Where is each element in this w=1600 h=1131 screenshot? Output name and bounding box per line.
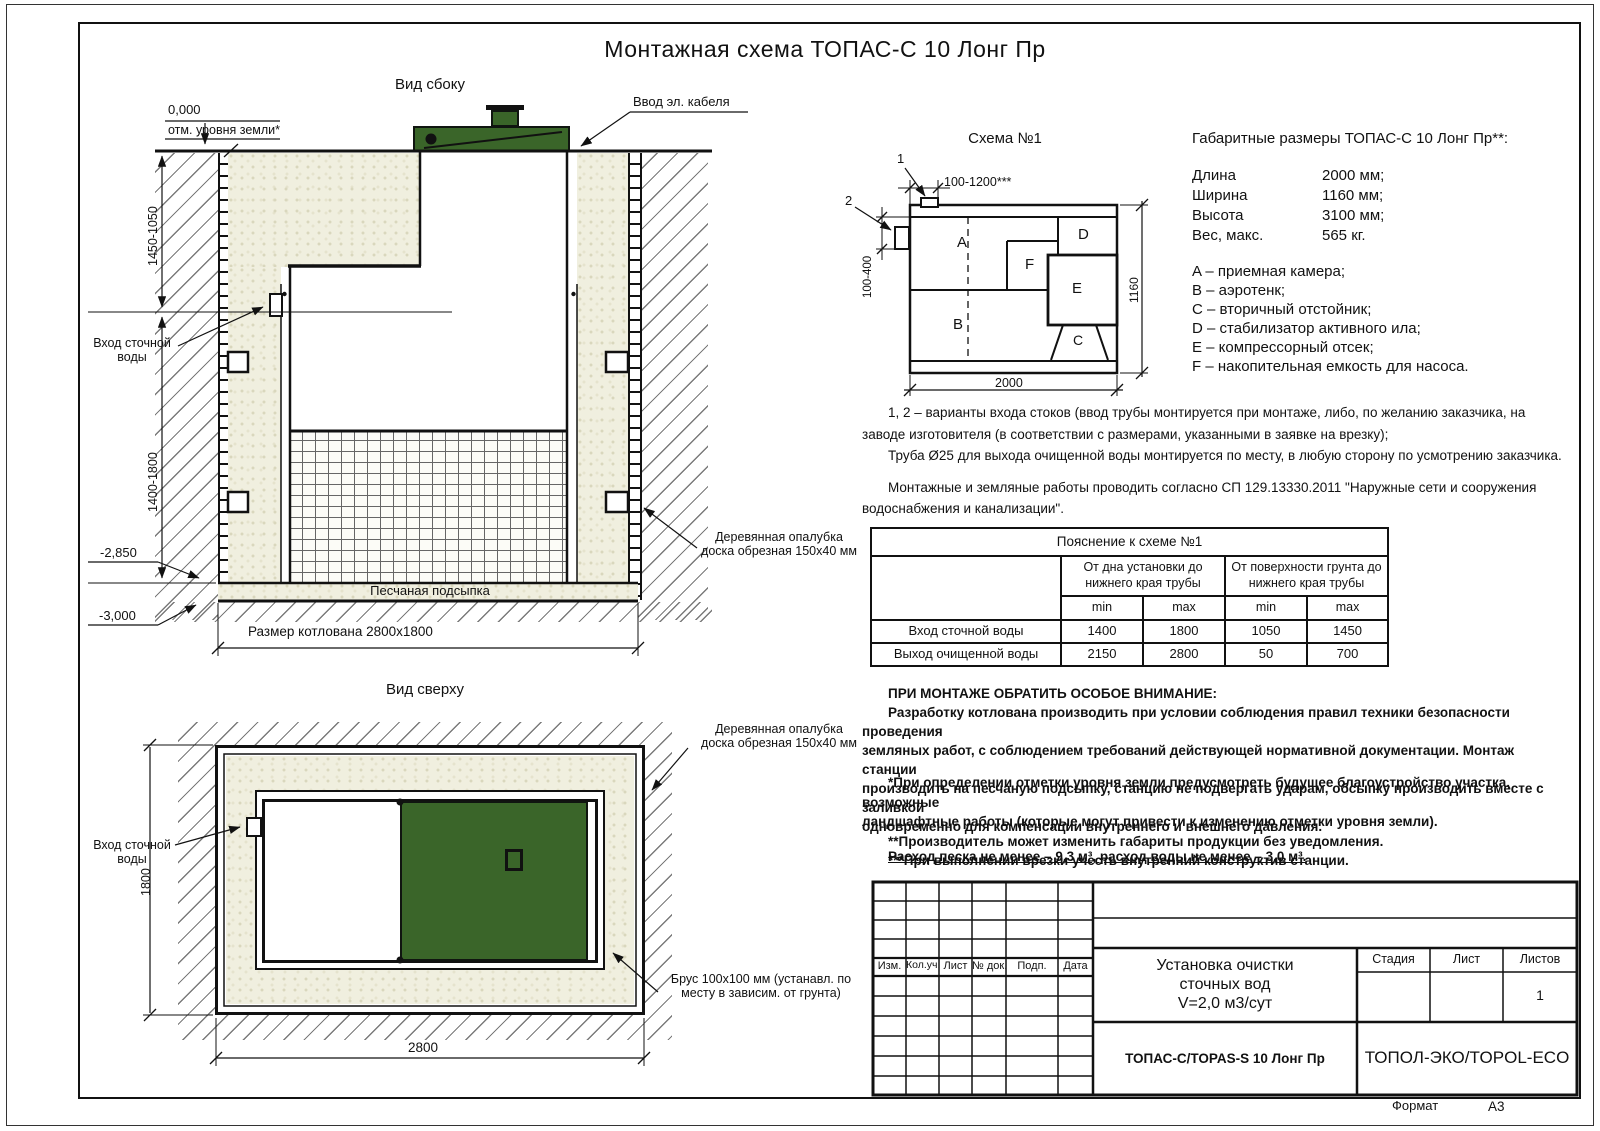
cell: 1450 — [1307, 620, 1388, 643]
row-label: Вход сточной воды — [871, 620, 1061, 643]
zero-mark-label: 0,000 — [168, 103, 201, 118]
schema-ref-2: 2 — [845, 194, 852, 209]
schema-compartment-b: B — [953, 316, 963, 333]
notes-mounting: Монтажные и земляные работы проводить со… — [862, 477, 1572, 519]
mark-3000: -3,000 — [99, 609, 136, 624]
table-row-inlet: Вход сточной воды 1400 1800 1050 1450 — [871, 620, 1388, 643]
lid-vent-cap — [486, 105, 524, 110]
spec-label: Вес, макс. — [1192, 226, 1322, 246]
schema-compartment-c: C — [1073, 333, 1083, 349]
cell: 1800 — [1143, 620, 1225, 643]
spec-value: 1160 мм; — [1322, 186, 1383, 206]
table-col-bottom: От дна установки до нижнего края трубы — [1061, 556, 1225, 596]
tb-sheet-header: Лист — [1430, 952, 1503, 966]
tb-doc-title: Установка очистки сточных вод V=2,0 м3/с… — [1093, 956, 1357, 1013]
schema-compartment-d: D — [1078, 226, 1089, 243]
specs-title: Габаритные размеры ТОПАС-С 10 Лонг Пр**: — [1192, 130, 1508, 147]
notes-mounting-line2: водоснабжения и канализации". — [862, 498, 1572, 519]
schema-dim-top: 100-1200*** — [944, 175, 1011, 189]
legend-item-a: A – приемная камера; — [1192, 262, 1469, 281]
lid-hatch-topview — [505, 849, 523, 871]
inlet-label-side: Вход сточной воды — [82, 336, 182, 365]
tb-col-koluch: Кол.уч. — [906, 960, 939, 972]
ground-hatch-bottom — [155, 602, 712, 622]
inlet-stub-topview — [246, 817, 262, 837]
table-min1: min — [1061, 596, 1143, 620]
tb-col-izm: Изм. — [873, 960, 906, 973]
format-label: Формат — [1392, 1099, 1438, 1114]
beam-label-line1: Брус 100х100 мм (устанавл. по — [652, 972, 870, 986]
format-value: А3 — [1488, 1099, 1505, 1114]
sand-backfill-upper-left — [228, 153, 420, 267]
tank-lid-topview — [400, 801, 588, 961]
dim-1800: 1800 — [139, 868, 153, 896]
cell: 1400 — [1061, 620, 1143, 643]
ground-level-label: отм. уровня земли* — [168, 123, 280, 137]
page-title: Монтажная схема ТОПАС-С 10 Лонг Пр — [565, 36, 1085, 62]
formwork-label-top: Деревянная опалубка доска обрезная 150х4… — [690, 722, 868, 751]
sand-backfill-lower-left — [228, 267, 281, 583]
notes-variants: 1, 2 – варианты входа стоков (ввод трубы… — [862, 402, 1572, 467]
spec-label: Высота — [1192, 206, 1322, 226]
schema-compartment-a: A — [957, 234, 967, 251]
dim-1400-1800: 1400-1800 — [146, 452, 160, 512]
schema-dim-left: 100-400 — [862, 256, 875, 298]
spec-value: 3100 мм; — [1322, 206, 1384, 226]
notes-variants-line1: 1, 2 – варианты входа стоков (ввод трубы… — [862, 402, 1572, 424]
table-max1: max — [1143, 596, 1225, 620]
dim-2800: 2800 — [408, 1040, 438, 1055]
side-view-title: Вид сбоку — [370, 76, 490, 93]
tb-sheets-value: 1 — [1503, 988, 1577, 1004]
tank-lower-section — [290, 432, 567, 583]
cell: 700 — [1307, 643, 1388, 666]
spec-row-width: Ширина1160 мм; — [1192, 186, 1384, 206]
attention-header: ПРИ МОНТАЖЕ ОБРАТИТЬ ОСОБОЕ ВНИМАНИЕ: — [862, 684, 1572, 703]
tb-product: ТОПАС-С/TOPAS-S 10 Лонг Пр — [1093, 1051, 1357, 1066]
inlet-label-top-line2: воды — [82, 852, 182, 866]
cell: 1050 — [1225, 620, 1307, 643]
spec-label: Длина — [1192, 166, 1322, 186]
drawing-sheet: Монтажная схема ТОПАС-С 10 Лонг Пр Вид с… — [0, 0, 1600, 1131]
attention-line1: Разработку котлована производить при усл… — [862, 703, 1572, 741]
legend-item-e: E – компрессорный отсек; — [1192, 338, 1469, 357]
sand-backfill-right — [577, 153, 628, 583]
tb-col-podp: Подп. — [1006, 960, 1058, 973]
legend-item-c: C – вторичный отстойник; — [1192, 300, 1469, 319]
table-corner-cell — [871, 556, 1061, 620]
formwork-label-side-line2: доска обрезная 150х40 мм — [695, 544, 863, 558]
formwork-label-side: Деревянная опалубка доска обрезная 150х4… — [695, 530, 863, 559]
notes-mounting-line1: Монтажные и земляные работы проводить со… — [862, 477, 1572, 498]
spec-label: Ширина — [1192, 186, 1322, 206]
legend-item-d: D – стабилизатор активного ила; — [1192, 319, 1469, 338]
tb-col-data: Дата — [1058, 960, 1093, 973]
table-row-outlet: Выход очищенной воды 2150 2800 50 700 — [871, 643, 1388, 666]
formwork-label-top-line1: Деревянная опалубка — [690, 722, 868, 736]
tb-sheets-header: Листов — [1503, 952, 1577, 966]
spec-row-weight: Вес, макс.565 кг. — [1192, 226, 1384, 246]
spec-value: 565 кг. — [1322, 226, 1366, 246]
consumption-note: Расход песка не менее – 9,3 м³, расход в… — [888, 849, 1306, 864]
tb-col-list: Лист — [939, 960, 972, 973]
tb-company: ТОПОЛ-ЭКО/TOPOL-ECO — [1357, 1048, 1577, 1067]
dim-1450-1050: 1450-1050 — [146, 206, 160, 266]
cell: 2150 — [1061, 643, 1143, 666]
schema-dim-height: 1160 — [1128, 277, 1142, 303]
tb-stage-header: Стадия — [1357, 952, 1430, 966]
cell: 50 — [1225, 643, 1307, 666]
notes-variants-line3: Труба Ø25 для выхода очищенной воды монт… — [862, 445, 1572, 467]
spec-row-height: Высота3100 мм; — [1192, 206, 1384, 226]
beam-label: Брус 100х100 мм (устанавл. по месту в за… — [652, 972, 870, 1001]
legend-item-b: B – аэротенк; — [1192, 281, 1469, 300]
table-min2: min — [1225, 596, 1307, 620]
formwork-label-side-line1: Деревянная опалубка — [695, 530, 863, 544]
formwork-label-top-line2: доска обрезная 150х40 мм — [690, 736, 868, 750]
sand-bed-label: Песчаная подсыпка — [355, 584, 505, 599]
tb-doc-title-line2: сточных вод — [1093, 975, 1357, 994]
cable-entry-label: Ввод эл. кабеля — [633, 95, 730, 110]
table-max2: max — [1307, 596, 1388, 620]
spec-value: 2000 мм; — [1322, 166, 1384, 186]
schema-title: Схема №1 — [935, 130, 1075, 147]
top-view-title: Вид сверху — [365, 681, 485, 698]
inlet-label-side-line2: воды — [82, 350, 182, 364]
tb-doc-title-line3: V=2,0 м3/сут — [1093, 994, 1357, 1013]
inlet-label-top: Вход сточной воды — [82, 838, 182, 867]
compartment-legend: A – приемная камера; B – аэротенк; C – в… — [1192, 262, 1469, 376]
tb-doc-title-line1: Установка очистки — [1093, 956, 1357, 975]
explanation-table: Пояснение к схеме №1 От дна установки до… — [870, 527, 1389, 667]
formwork-right — [628, 153, 642, 600]
table-col-surface: От поверхности грунта до нижнего края тр… — [1225, 556, 1388, 596]
footnote-1a: *При определении отметки уровня земли пр… — [862, 773, 1572, 812]
tb-col-ndok: № док. — [972, 960, 1006, 973]
lid-vent-stub — [491, 110, 519, 127]
notes-variants-line2: заводе изготовителя (в соответствии с ра… — [862, 424, 1572, 446]
row-label: Выход очищенной воды — [871, 643, 1061, 666]
table-title: Пояснение к схеме №1 — [871, 528, 1388, 556]
schema-ref-1: 1 — [897, 152, 904, 167]
spec-row-length: Длина2000 мм; — [1192, 166, 1384, 186]
footnote-1b: ландшафтные работы (которые могут привес… — [862, 812, 1572, 832]
beam-label-line2: месту в зависим. от грунта) — [652, 986, 870, 1000]
inlet-label-top-line1: Вход сточной — [82, 838, 182, 852]
legend-item-f: F – накопительная емкость для насоса. — [1192, 357, 1469, 376]
tank-lid-side — [413, 126, 570, 152]
schema-compartment-e: E — [1072, 280, 1082, 297]
cell: 2800 — [1143, 643, 1225, 666]
mark-2850: -2,850 — [100, 546, 137, 561]
schema-compartment-f: F — [1025, 256, 1034, 273]
ground-hatch-left — [155, 153, 218, 620]
schema-dim-width: 2000 — [995, 376, 1023, 390]
specs-list: Длина2000 мм; Ширина1160 мм; Высота3100 … — [1192, 166, 1384, 246]
inlet-label-side-line1: Вход сточной — [82, 336, 182, 350]
pit-size-label: Размер котлована 2800х1800 — [248, 624, 433, 639]
